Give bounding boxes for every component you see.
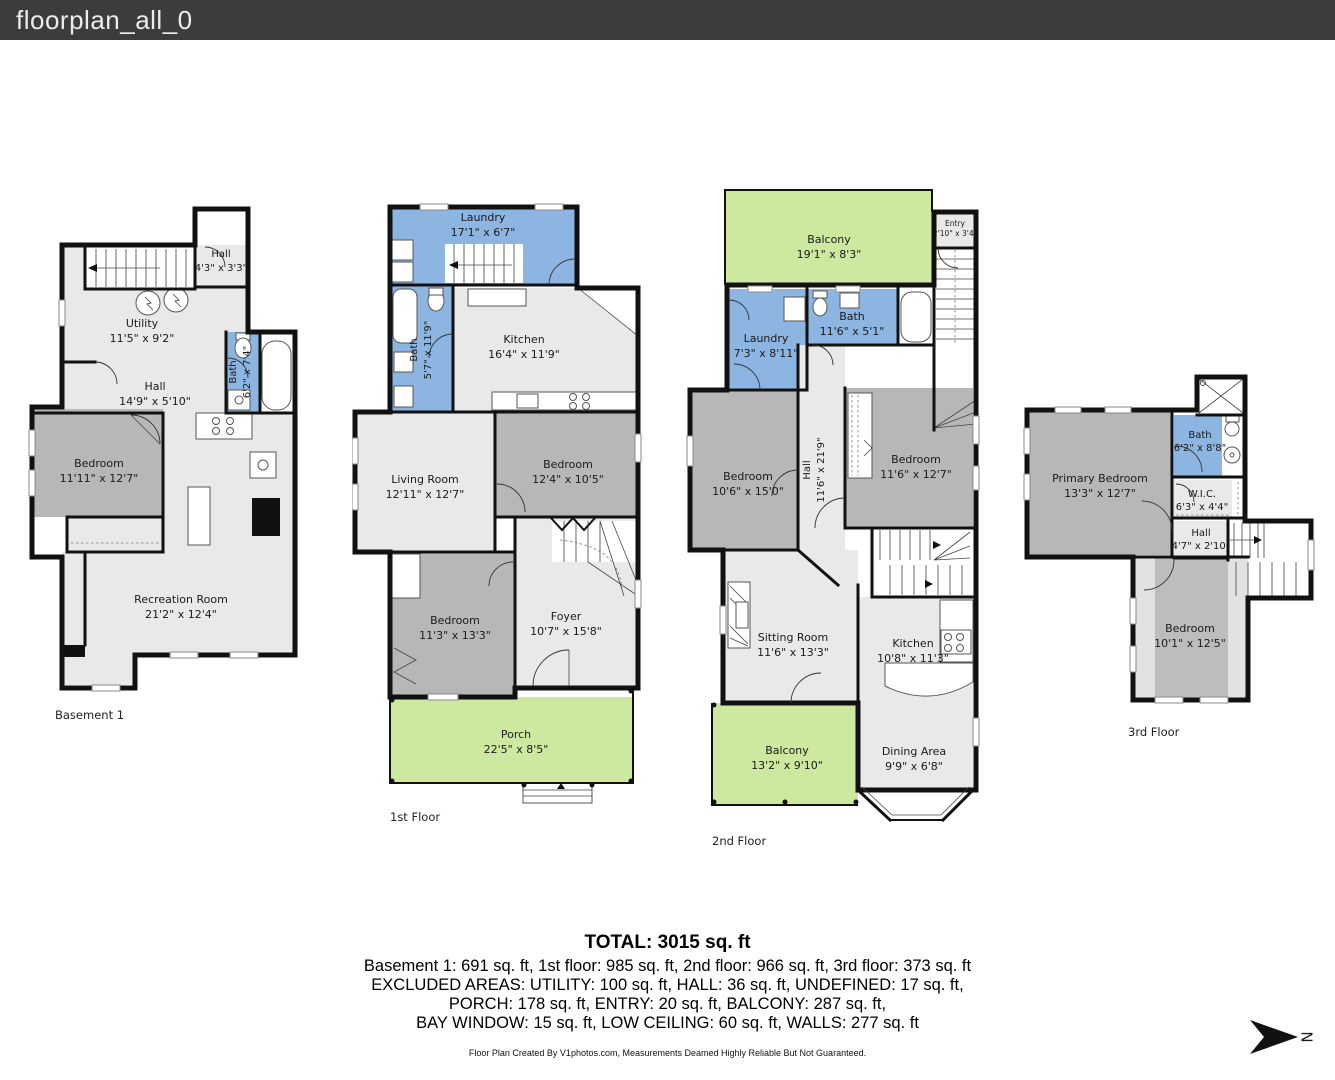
room-label: Utility bbox=[126, 317, 159, 330]
room-dims: 19'1" x 8'3" bbox=[797, 248, 862, 261]
excluded-areas-2: PORCH: 178 sq. ft, ENTRY: 20 sq. ft, BAL… bbox=[0, 995, 1335, 1014]
room-dims: 11'6" x 12'7" bbox=[880, 468, 952, 481]
room-label: Primary Bedroom bbox=[1052, 472, 1148, 485]
compass-letter: N bbox=[1298, 1031, 1316, 1042]
floorplan-third: Primary Bedroom 13'3" x 12'7" Bath 6'2" … bbox=[1018, 372, 1318, 747]
room-label: Dining Area bbox=[882, 745, 946, 758]
room-label: Bath bbox=[409, 338, 420, 361]
room-dims: 10'8" x 11'3" bbox=[877, 652, 949, 665]
room-dims: 11'3" x 13'3" bbox=[419, 629, 491, 642]
room-dims: 22'5" x 8'5" bbox=[484, 743, 549, 756]
room-label: Entry bbox=[945, 219, 966, 228]
room-dims: 5'7" x 11'9" bbox=[423, 321, 434, 380]
north-arrow-icon: N bbox=[1240, 1008, 1330, 1068]
page-title: floorplan_all_0 bbox=[16, 5, 193, 36]
room-dims: 4'7" x 2'10" bbox=[1172, 541, 1231, 552]
room-label: Bedroom bbox=[1165, 622, 1215, 635]
room-dims: 13'2" x 9'10" bbox=[751, 759, 823, 772]
room-label: Bedroom bbox=[891, 453, 941, 466]
room-dims: 6'2" x 8'8" bbox=[1174, 443, 1226, 454]
room-dims: 4'3" x 3'3" bbox=[195, 263, 247, 274]
floorplan-second: Balcony 19'1" x 8'3" Entry 2'10" x 3'4" … bbox=[686, 185, 986, 855]
room-dims: 11'6" x 13'3" bbox=[757, 646, 829, 659]
area-summary: TOTAL: 3015 sq. ft Basement 1: 691 sq. f… bbox=[0, 932, 1335, 1033]
total-area: TOTAL: 3015 sq. ft bbox=[0, 932, 1335, 954]
room-dims: 10'6" x 15'0" bbox=[712, 485, 784, 498]
room-dims: 7'3" x 8'11" bbox=[734, 347, 799, 360]
floorplan-basement: Hall 4'3" x 3'3" Utility 11'5" x 9'2" Ha… bbox=[28, 200, 313, 730]
room-dims: 9'9" x 6'8" bbox=[885, 760, 943, 773]
floorplan-first: Laundry 17'1" x 6'7" Bath 5'7" x 11'9" K… bbox=[352, 200, 652, 830]
room-label: Porch bbox=[501, 728, 531, 741]
room-label: Kitchen bbox=[503, 333, 544, 346]
room-label: Bath bbox=[839, 310, 865, 323]
window-title-bar: floorplan_all_0 bbox=[0, 0, 1335, 40]
room-dims: 12'11" x 12'7" bbox=[386, 488, 465, 501]
room-dims: 16'4" x 11'9" bbox=[488, 348, 560, 361]
room-dims: 12'4" x 10'5" bbox=[532, 473, 604, 486]
room-label: Hall bbox=[211, 249, 230, 260]
floor-caption: 3rd Floor bbox=[1128, 725, 1180, 739]
room-label: Hall bbox=[1191, 528, 1210, 539]
room-label: Bath bbox=[1188, 430, 1211, 441]
room-label: Hall bbox=[144, 380, 165, 393]
room-label: W.I.C. bbox=[1188, 489, 1216, 500]
room-dims: 11'6" x 21'9" bbox=[816, 437, 827, 502]
room-dims: 10'1" x 12'5" bbox=[1154, 637, 1226, 650]
room-label: Bedroom bbox=[430, 614, 480, 627]
room-dims: 2'10" x 3'4" bbox=[933, 229, 977, 238]
room-label: Sitting Room bbox=[758, 631, 829, 644]
excluded-areas-3: BAY WINDOW: 15 sq. ft, LOW CEILING: 60 s… bbox=[0, 1014, 1335, 1033]
room-dims: 6'3" x 4'4" bbox=[1176, 502, 1228, 513]
room-label: Balcony bbox=[765, 744, 809, 757]
room-label: Laundry bbox=[461, 211, 506, 224]
room-dims: 21'2" x 12'4" bbox=[145, 608, 217, 621]
floor-caption: Basement 1 bbox=[55, 708, 124, 722]
room-dims: 11'6" x 5'1" bbox=[820, 325, 885, 338]
room-label: Laundry bbox=[744, 332, 789, 345]
room-label: Balcony bbox=[807, 233, 851, 246]
room-dims: 10'7" x 15'8" bbox=[530, 625, 602, 638]
room-label: Bath bbox=[228, 360, 239, 383]
room-label: Living Room bbox=[391, 473, 459, 486]
room-label: Bedroom bbox=[543, 458, 593, 471]
room-dims: 11'5" x 9'2" bbox=[110, 332, 175, 345]
credit-line: Floor Plan Created By V1photos.com, Meas… bbox=[0, 1048, 1335, 1058]
floor-caption: 1st Floor bbox=[390, 810, 440, 824]
excluded-areas-1: EXCLUDED AREAS: UTILITY: 100 sq. ft, HAL… bbox=[0, 976, 1335, 995]
floor-caption: 2nd Floor bbox=[712, 834, 766, 848]
room-label: Recreation Room bbox=[134, 593, 228, 606]
floor-areas: Basement 1: 691 sq. ft, 1st floor: 985 s… bbox=[0, 957, 1335, 976]
room-label: Bedroom bbox=[74, 457, 124, 470]
room-dims: 14'9" x 5'10" bbox=[119, 395, 191, 408]
room-dims: 13'3" x 12'7" bbox=[1064, 487, 1136, 500]
room-label: Kitchen bbox=[892, 637, 933, 650]
room-dims: 17'1" x 6'7" bbox=[451, 226, 516, 239]
room-label: Foyer bbox=[551, 610, 582, 623]
room-dims: 6'2" x 7'4" bbox=[242, 346, 253, 398]
room-dims: 11'11" x 12'7" bbox=[60, 472, 139, 485]
room-label: Bedroom bbox=[723, 470, 773, 483]
third-rooms bbox=[1027, 377, 1308, 700]
room-label: Hall bbox=[802, 460, 813, 479]
